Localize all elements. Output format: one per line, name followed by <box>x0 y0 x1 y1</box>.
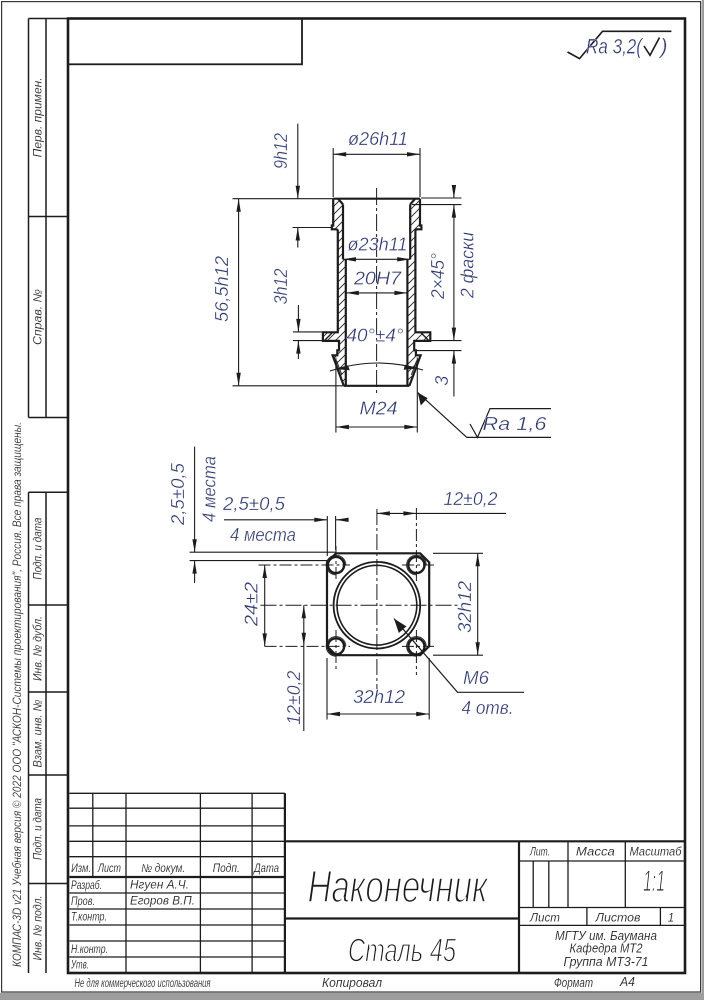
svg-text:А4: А4 <box>619 975 635 989</box>
svg-text:24±2: 24±2 <box>242 582 262 627</box>
svg-text:Подп. и дата: Подп. и дата <box>31 798 45 860</box>
svg-text:Пров.: Пров. <box>71 896 95 908</box>
svg-text:4 места: 4 места <box>230 525 296 545</box>
svg-text:Формат: Формат <box>554 976 593 990</box>
svg-text:20H7: 20H7 <box>353 269 402 289</box>
svg-text:12±0,2: 12±0,2 <box>444 489 498 509</box>
svg-text:Инв. № подл.: Инв. № подл. <box>31 896 45 961</box>
svg-text:М24: М24 <box>360 399 398 419</box>
svg-text:Копировал: Копировал <box>322 976 382 990</box>
svg-text:1: 1 <box>668 913 674 925</box>
svg-text:2 фаски: 2 фаски <box>458 232 478 299</box>
svg-text:Изм.: Изм. <box>71 863 91 875</box>
svg-text:4 места: 4 места <box>200 456 220 522</box>
svg-text:М6: М6 <box>463 668 490 688</box>
svg-text:2,5±0,5: 2,5±0,5 <box>168 462 188 526</box>
svg-text:№ докум.: № докум. <box>141 863 185 875</box>
svg-text:Масса: Масса <box>576 846 615 858</box>
svg-text:2×45°: 2×45° <box>428 253 448 300</box>
svg-text:Взам. инв. №: Взам. инв. № <box>31 700 45 768</box>
svg-text:Группа МТ3-71: Группа МТ3-71 <box>564 954 649 969</box>
svg-text:4 отв.: 4 отв. <box>462 698 514 718</box>
svg-text:Н.контр.: Н.контр. <box>71 944 108 956</box>
svg-text:Справ. №: Справ. № <box>31 289 45 345</box>
svg-text:32h12: 32h12 <box>455 581 475 633</box>
svg-text:2,5±0,5: 2,5±0,5 <box>222 494 286 514</box>
svg-text:9h12: 9h12 <box>271 133 291 169</box>
svg-text:Ra 1,6: Ra 1,6 <box>483 414 548 434</box>
svg-text:Лист: Лист <box>97 863 121 875</box>
svg-text:Разраб.: Разраб. <box>71 880 102 892</box>
svg-text:Наконечник: Наконечник <box>308 861 489 912</box>
svg-text:12±0,2: 12±0,2 <box>284 671 304 725</box>
svg-text:Масштаб: Масштаб <box>630 846 683 858</box>
svg-text:Сталь 45: Сталь 45 <box>348 932 456 969</box>
svg-text:Не для коммерческого использов: Не для коммерческого использования <box>75 978 211 990</box>
svg-text:Нгуен А.Ч.: Нгуен А.Ч. <box>130 879 189 891</box>
svg-text:56,5h12: 56,5h12 <box>212 256 232 322</box>
svg-text:ø26h11: ø26h11 <box>348 129 408 149</box>
svg-text:Лит.: Лит. <box>529 846 550 858</box>
svg-text:Инв. № дубл.: Инв. № дубл. <box>31 616 45 681</box>
svg-text:Подп.: Подп. <box>213 863 240 875</box>
svg-text:Листов: Листов <box>594 913 640 925</box>
svg-text:Ra 3,2(: Ra 3,2( <box>586 36 644 59</box>
svg-text:32h12: 32h12 <box>353 687 405 707</box>
svg-text:Дата: Дата <box>252 863 279 875</box>
svg-text:3h12: 3h12 <box>271 269 291 305</box>
svg-text:КОМПАС-3D v21 Учебная версия ©: КОМПАС-3D v21 Учебная версия © 2022 ООО … <box>12 422 24 967</box>
svg-text:3: 3 <box>432 376 452 386</box>
svg-text:Т.контр.: Т.контр. <box>71 912 107 924</box>
svg-text:Егоров В.П.: Егоров В.П. <box>130 895 195 907</box>
svg-text:ø23h11: ø23h11 <box>348 235 408 255</box>
svg-text:1:1: 1:1 <box>643 865 665 898</box>
svg-text:Перв. примен.: Перв. примен. <box>31 77 45 157</box>
svg-text:Лист: Лист <box>529 913 560 925</box>
svg-text:Подп. и дата: Подп. и дата <box>31 517 45 579</box>
svg-text:40°±4°: 40°±4° <box>347 326 404 346</box>
svg-text:Утв.: Утв. <box>70 960 89 972</box>
